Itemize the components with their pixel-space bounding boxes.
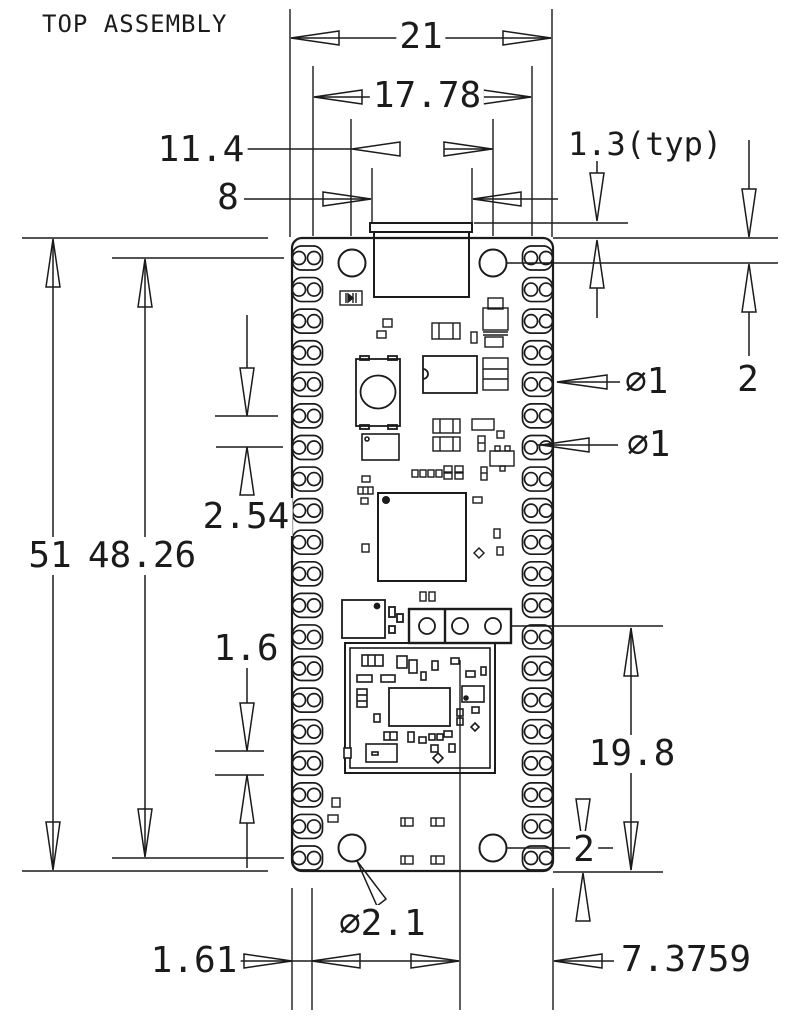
- pad-hole: [308, 409, 321, 422]
- mounting-hole-bottom-left: [339, 835, 366, 862]
- module-chip: [389, 688, 450, 726]
- dim-label-pin-row-span: 17.78: [370, 77, 484, 115]
- dim-label-board-width: 21: [396, 18, 445, 56]
- dim-label-header-from-bottom: 19.8: [586, 735, 679, 773]
- pad-hole: [293, 567, 306, 580]
- wireless-module: [344, 643, 495, 773]
- regulator-ic: [423, 356, 477, 393]
- dim-label-pad-span: 48.26: [85, 537, 199, 575]
- crystal: [362, 434, 399, 460]
- pad-hole: [308, 788, 321, 801]
- dim-label-edge-to-hole-top: 2: [734, 361, 762, 399]
- pad-hole: [308, 473, 321, 486]
- leader-through-hole-dia: [537, 438, 618, 452]
- pad-hole: [293, 315, 306, 328]
- pad-hole: [293, 473, 306, 486]
- passives-bottom: [328, 798, 444, 864]
- pad-hole: [525, 473, 538, 486]
- pad-hole: [308, 504, 321, 517]
- pad-hole: [308, 820, 321, 833]
- pcb-board: [292, 223, 553, 871]
- dim-label-edge-to-pin-row: 1.61: [148, 942, 241, 980]
- dimension-lines: [46, 31, 756, 968]
- pad-hole: [540, 820, 553, 833]
- pad-hole: [525, 409, 538, 422]
- dim-label-edge-to-hole-bottom: 2: [570, 831, 598, 869]
- pad-hole: [540, 725, 553, 738]
- pad-hole: [540, 567, 553, 580]
- pad-hole: [540, 630, 553, 643]
- dim-module-ref-to-edge: [554, 954, 614, 968]
- passives-around-chip: [362, 497, 503, 601]
- pad-hole: [540, 662, 553, 675]
- flash-chip: [342, 600, 403, 638]
- pad-hole: [308, 567, 321, 580]
- dim-label-usb-overhang: 1.3(typ): [565, 127, 725, 161]
- pad-hole: [293, 630, 306, 643]
- drawing-title: TOP ASSEMBLY: [42, 12, 227, 36]
- pad-hole: [525, 725, 538, 738]
- pad-hole: [540, 346, 553, 359]
- board-outline: [292, 238, 553, 871]
- pad-hole: [525, 852, 538, 865]
- dim-hole-spacing: [242, 142, 493, 156]
- pad-hole: [525, 346, 538, 359]
- pad-hole: [525, 441, 538, 454]
- dim-edge-to-pin-row: [238, 954, 459, 968]
- pad-hole: [308, 694, 321, 707]
- pad-hole: [293, 378, 306, 391]
- pad-hole: [540, 852, 553, 865]
- pad-hole: [525, 536, 538, 549]
- dim-label-pad-width: 1.6: [210, 630, 281, 668]
- pad-hole: [293, 757, 306, 770]
- pad-hole: [293, 788, 306, 801]
- pad-hole: [525, 820, 538, 833]
- pad-hole: [308, 852, 321, 865]
- pad-hole: [540, 504, 553, 517]
- dim-pad-width: [240, 666, 254, 868]
- pad-hole: [308, 630, 321, 643]
- dim-edge-to-hole-top: [742, 140, 756, 356]
- pad-hole: [308, 283, 321, 296]
- dim-usb-width: [244, 192, 558, 206]
- pad-hole: [525, 315, 538, 328]
- pad-hole: [540, 788, 553, 801]
- pad-hole: [293, 252, 306, 265]
- pad-hole: [308, 757, 321, 770]
- pad-hole: [308, 599, 321, 612]
- pad-hole: [540, 378, 553, 391]
- passives-mid: [358, 419, 514, 504]
- pad-hole: [525, 599, 538, 612]
- technical-drawing-page: TOP ASSEMBLY 21 17.78 11.4 8 1.3(typ) 2 …: [0, 0, 798, 1024]
- pad-hole: [540, 757, 553, 770]
- pad-hole: [293, 346, 306, 359]
- leader-castellation-dia: [557, 375, 620, 389]
- pad-hole: [308, 441, 321, 454]
- pad-hole: [293, 662, 306, 675]
- pad-hole: [293, 441, 306, 454]
- dim-label-castellation-dia: ∅1: [622, 363, 671, 401]
- leader-mount-hole-dia: [357, 861, 386, 906]
- dim-label-mount-hole-dia: ∅2.1: [336, 905, 429, 943]
- passives-upper: [377, 298, 508, 390]
- mounting-hole-top-right: [480, 250, 507, 277]
- rp2040-chip: [378, 493, 466, 581]
- dim-pad-pitch: [240, 315, 254, 495]
- castellated-pads-right: [523, 246, 553, 870]
- pad-hole: [293, 599, 306, 612]
- pad-hole: [525, 504, 538, 517]
- pad-hole: [293, 725, 306, 738]
- mounting-hole-top-left: [339, 250, 366, 277]
- led: [340, 291, 362, 305]
- pad-hole: [293, 283, 306, 296]
- pad-hole: [293, 504, 306, 517]
- pad-hole: [293, 852, 306, 865]
- castellated-pads-left: [293, 246, 323, 870]
- pad-hole: [293, 536, 306, 549]
- dim-label-hole-spacing: 11.4: [155, 131, 248, 169]
- pad-hole: [525, 662, 538, 675]
- pad-hole: [540, 694, 553, 707]
- dim-label-module-ref-to-edge: 7.3759: [618, 941, 754, 979]
- pad-hole: [293, 820, 306, 833]
- dim-label-through-hole-dia: ∅1: [624, 426, 673, 464]
- pad-hole: [540, 473, 553, 486]
- pad-hole: [540, 283, 553, 296]
- mounting-hole-bottom-right: [480, 835, 507, 862]
- pad-hole: [540, 599, 553, 612]
- pad-hole: [540, 315, 553, 328]
- dim-label-pad-pitch: 2.54: [200, 498, 293, 536]
- pad-hole: [308, 725, 321, 738]
- dim-label-usb-width: 8: [214, 179, 242, 217]
- pad-hole: [540, 409, 553, 422]
- pad-hole: [308, 315, 321, 328]
- pad-hole: [308, 378, 321, 391]
- pad-hole: [293, 409, 306, 422]
- pad-hole: [525, 630, 538, 643]
- pad-hole: [308, 346, 321, 359]
- pad-hole: [525, 694, 538, 707]
- pad-hole: [293, 694, 306, 707]
- debug-header: [409, 609, 511, 643]
- usb-connector: [370, 223, 472, 297]
- pad-hole: [308, 662, 321, 675]
- pad-hole: [540, 441, 553, 454]
- pad-hole: [308, 252, 321, 265]
- pad-hole: [525, 283, 538, 296]
- pad-hole: [525, 788, 538, 801]
- pad-hole: [540, 536, 553, 549]
- dim-usb-overhang: [590, 160, 604, 318]
- pad-hole: [308, 536, 321, 549]
- pad-hole: [525, 378, 538, 391]
- pad-hole: [525, 567, 538, 580]
- bootsel-button: [356, 356, 400, 429]
- dim-label-board-length: 51: [25, 537, 74, 575]
- pad-hole: [525, 757, 538, 770]
